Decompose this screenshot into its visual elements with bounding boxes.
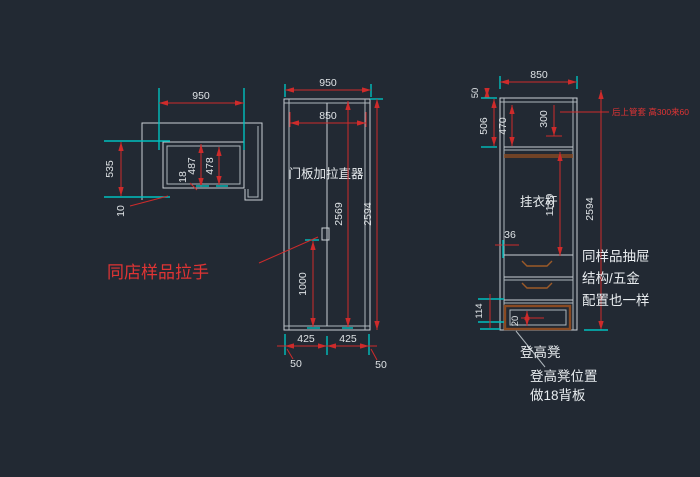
dim-text-1000: 1000 xyxy=(297,272,309,296)
dim-text-50-right: 50 xyxy=(375,359,387,371)
dim-text-20: 20 xyxy=(510,316,521,327)
dim-text-50: 50 xyxy=(470,88,481,99)
dim-text-425-left: 425 xyxy=(297,333,315,345)
dim-text-36: 36 xyxy=(504,229,516,241)
door-straightener-label: 门板加拉直器 xyxy=(288,166,364,181)
dim-text-425-right: 425 xyxy=(339,333,357,345)
dim-text-850: 850 xyxy=(530,69,548,81)
dim-text-470: 470 xyxy=(497,117,509,135)
drawer-note-line2: 结构/五金 xyxy=(582,271,640,286)
dim-text-300: 300 xyxy=(538,110,550,128)
dim-text-950: 950 xyxy=(192,90,210,102)
pipe-note-text: 后上管套 高300来60 xyxy=(612,107,689,117)
drawer-note-line1: 同样品抽屉 xyxy=(582,249,650,264)
cad-drawing: 950 535 487 478 18 10 950 xyxy=(0,0,700,477)
dim-text-50-left: 50 xyxy=(290,358,302,370)
dim-text-535: 535 xyxy=(104,160,116,178)
dim-text-18: 18 xyxy=(177,171,189,183)
model-space-background xyxy=(0,0,700,477)
dim-text-850: 850 xyxy=(319,110,337,122)
handle-note-text: 同店样品拉手 xyxy=(107,263,209,282)
dim-text-950: 950 xyxy=(319,77,337,89)
stool-note-line1: 登高凳位置 xyxy=(530,368,598,384)
dim-text-10: 10 xyxy=(115,205,127,217)
stool-note-line2: 做18背板 xyxy=(530,388,586,403)
drawer-note-line3: 配置也一样 xyxy=(582,293,650,308)
cad-drawing-canvas[interactable]: 950 535 487 478 18 10 950 xyxy=(0,0,700,477)
dim-text-2569: 2569 xyxy=(333,202,345,226)
dim-text-2594: 2594 xyxy=(584,197,596,221)
stool-label: 登高凳 xyxy=(520,344,561,360)
dim-text-1189: 1189 xyxy=(544,194,556,217)
dim-text-478: 478 xyxy=(204,157,216,175)
dim-text-506: 506 xyxy=(478,117,490,135)
dim-text-2594: 2594 xyxy=(362,202,374,226)
dim-text-114: 114 xyxy=(474,303,485,318)
